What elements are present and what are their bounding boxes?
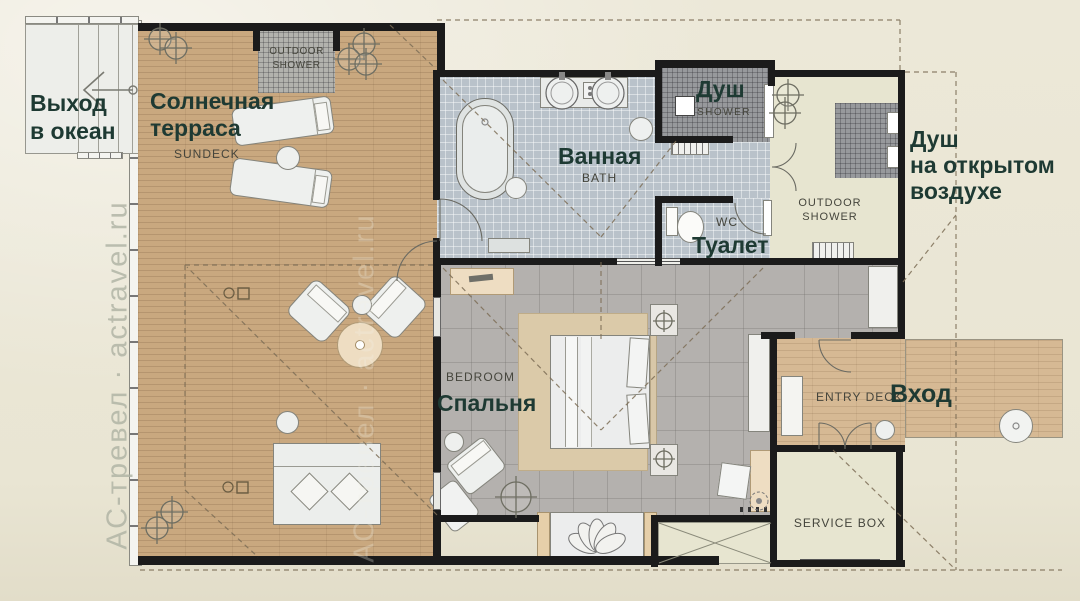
bedroom-wardrobe <box>748 334 770 432</box>
shower-bench <box>671 142 709 155</box>
wall <box>768 70 905 77</box>
label-ocean-exit-line1: Выход <box>30 90 107 116</box>
wall <box>655 60 662 143</box>
walkway-planter <box>999 409 1033 443</box>
bed-pillow <box>626 337 649 388</box>
wall <box>433 70 662 77</box>
shower-passage-door-leaf <box>764 84 774 138</box>
label-sundeck-ru-line2: терраса <box>150 115 241 141</box>
label-outdoor-shower-right-ru-line2: на открытом <box>910 152 1055 178</box>
sliding-door <box>617 258 681 265</box>
label-outdoor-shower-right-en-line1: OUTDOOR <box>790 197 870 210</box>
bedroom-daybed <box>550 512 644 562</box>
daybed-side-table <box>276 411 299 434</box>
label-shower-en: SHOWER <box>697 106 751 119</box>
wall <box>851 332 905 339</box>
watermark-text: АС-тревел · actravel.ru <box>102 200 135 549</box>
wall <box>333 23 340 51</box>
vanity-chair <box>717 462 751 500</box>
label-sundeck-en: SUNDECK <box>174 148 240 161</box>
deck-door-panel <box>433 297 441 337</box>
bath-stool <box>629 117 653 141</box>
wc-door-leaf <box>763 200 772 236</box>
label-outdoor-shower-right-ru-line3: воздухе <box>910 178 1002 204</box>
label-outdoor-shower-right-ru-line1: Душ <box>910 126 959 152</box>
wall <box>768 60 775 86</box>
wall <box>898 258 905 338</box>
label-entry-ru: Вход <box>890 381 952 407</box>
bed-blanket-fold <box>565 337 578 447</box>
wall <box>777 445 905 452</box>
bed-pillow <box>626 393 649 444</box>
entry-stool <box>875 420 895 440</box>
wall <box>896 445 903 567</box>
wall <box>651 515 777 522</box>
shower-room-floor <box>657 62 770 142</box>
wall <box>655 196 733 203</box>
label-bath-en: BATH <box>582 172 617 185</box>
wall <box>761 332 795 339</box>
outdoor-shower-top-label-line1: OUTDOOR <box>258 45 335 58</box>
outdoor-shower-top-label-line2: SHOWER <box>258 59 335 72</box>
wall <box>433 515 539 522</box>
bath-stool <box>505 177 527 199</box>
wall <box>655 60 775 68</box>
bedroom-side-table <box>444 432 464 452</box>
label-bedroom-ru: Спальня <box>437 390 536 416</box>
wall <box>253 23 260 51</box>
label-wc-en: WC <box>716 216 738 229</box>
desk-item <box>469 274 493 282</box>
wall <box>898 70 905 269</box>
lounger-side-table <box>276 146 300 170</box>
daybed-pillow <box>290 472 328 510</box>
nightstand <box>650 444 678 476</box>
wall <box>655 196 662 266</box>
wall <box>433 70 440 200</box>
label-outdoor-shower-right-en-line2: SHOWER <box>790 211 870 224</box>
toilet-tank <box>666 207 678 236</box>
wall <box>138 23 445 31</box>
wall <box>437 23 445 77</box>
label-service-box: SERVICE BOX <box>777 517 903 530</box>
corridor-wardrobe <box>868 266 898 328</box>
wall <box>777 560 905 567</box>
bath-bench <box>488 238 530 253</box>
lounger-pillow <box>312 175 329 205</box>
wall <box>770 332 777 567</box>
label-ocean-exit-line2: в океан <box>30 118 116 144</box>
wall <box>138 556 719 565</box>
label-shower-ru: Душ <box>696 76 745 102</box>
deck-door-panel <box>433 472 441 510</box>
wall <box>433 258 617 265</box>
ocean-platform-rail-top <box>25 16 139 24</box>
bed-headboard <box>650 330 657 452</box>
floor-plan: OUTDOOR SHOWER <box>0 0 1080 601</box>
wall <box>680 258 775 265</box>
wall <box>768 258 905 265</box>
stair-step-line <box>132 25 133 153</box>
entry-mat <box>781 376 803 436</box>
vanity-fixture <box>583 82 596 99</box>
floor-grille <box>740 507 770 512</box>
bathtub-inner <box>462 105 508 193</box>
shower-head-unit <box>675 96 695 116</box>
wall <box>655 136 733 143</box>
service-box-floor <box>777 447 903 565</box>
lounger-pillow <box>314 102 331 132</box>
watermark-text: АС-тревел · actravel.ru <box>349 213 382 562</box>
stair-step-line <box>118 25 119 153</box>
bed-blanket-fold <box>581 337 592 447</box>
bedroom-desk <box>450 268 514 295</box>
ocean-platform-rail-bottom <box>77 152 123 159</box>
label-bath-ru: Ванная <box>558 143 641 169</box>
label-bedroom-en: BEDROOM <box>446 371 515 384</box>
nightstand <box>650 304 678 336</box>
label-sundeck-ru-line1: Солнечная <box>150 88 274 114</box>
wall <box>433 265 441 297</box>
label-wc-ru: Туалет <box>692 232 769 258</box>
outdoor-shower-top-pad: OUTDOOR SHOWER <box>258 27 335 93</box>
